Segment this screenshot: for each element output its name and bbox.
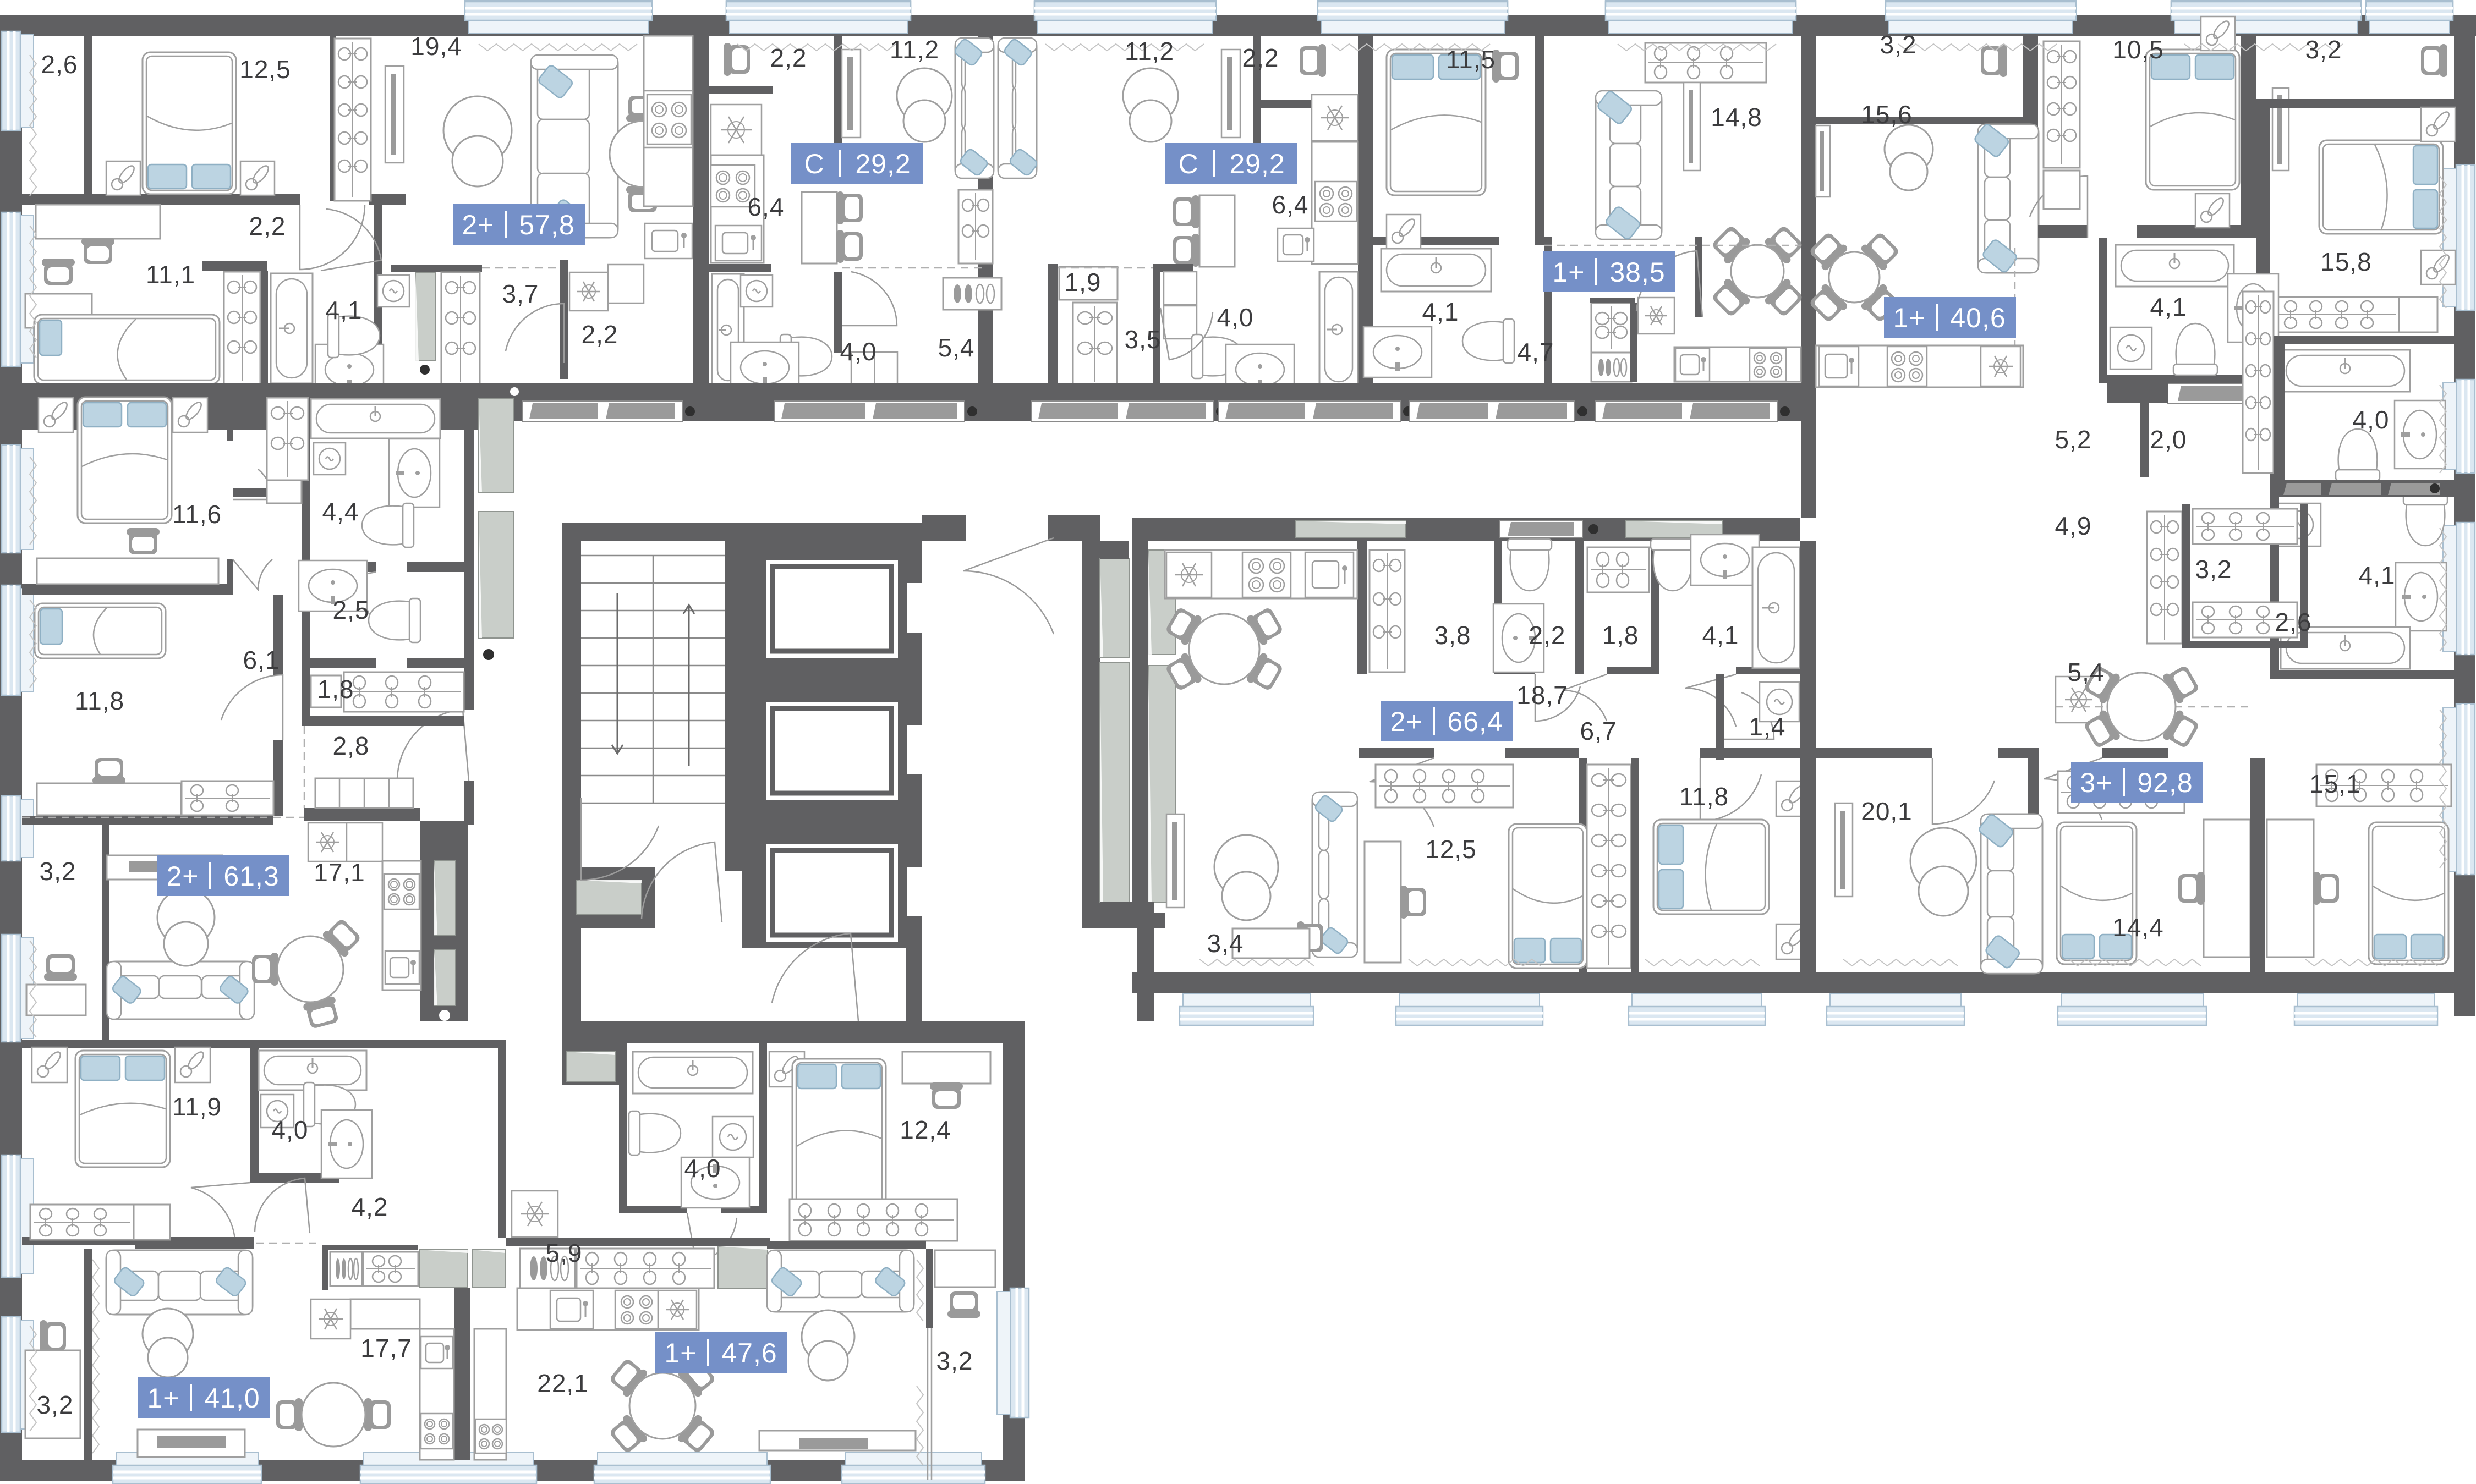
svg-text:C: C	[804, 149, 824, 179]
svg-text:4,7: 4,7	[1518, 338, 1554, 366]
svg-text:15,1: 15,1	[2309, 770, 2361, 798]
svg-text:4,9: 4,9	[2055, 512, 2092, 540]
svg-text:1,8: 1,8	[1602, 621, 1639, 650]
svg-text:2+: 2+	[462, 210, 494, 240]
svg-text:12,4: 12,4	[900, 1115, 951, 1144]
svg-text:4,4: 4,4	[322, 497, 359, 526]
svg-text:10,5: 10,5	[2112, 35, 2164, 64]
svg-text:1+: 1+	[664, 1338, 697, 1368]
svg-text:11,8: 11,8	[75, 686, 124, 715]
svg-text:1,4: 1,4	[1749, 712, 1786, 741]
svg-text:4,1: 4,1	[1702, 621, 1739, 650]
svg-text:3,5: 3,5	[1125, 325, 1162, 354]
svg-text:1+: 1+	[1893, 303, 1925, 333]
svg-text:4,2: 4,2	[352, 1192, 388, 1221]
svg-text:15,6: 15,6	[1861, 100, 1913, 129]
svg-text:3,4: 3,4	[1207, 929, 1244, 958]
svg-text:6,7: 6,7	[1580, 717, 1617, 745]
svg-text:2,0: 2,0	[2150, 425, 2187, 454]
svg-text:66,4: 66,4	[1447, 706, 1503, 737]
svg-text:14,8: 14,8	[1711, 103, 1762, 131]
svg-text:12,5: 12,5	[1425, 835, 1477, 864]
svg-text:92,8: 92,8	[2137, 767, 2193, 798]
svg-text:17,7: 17,7	[360, 1334, 412, 1362]
svg-text:6,4: 6,4	[748, 193, 785, 221]
svg-text:22,1: 22,1	[537, 1369, 589, 1398]
svg-text:4,1: 4,1	[2150, 293, 2187, 321]
svg-text:2,6: 2,6	[2275, 608, 2312, 636]
svg-text:4,1: 4,1	[326, 296, 363, 325]
svg-text:11,8: 11,8	[1679, 782, 1729, 811]
svg-text:17,1: 17,1	[314, 858, 365, 887]
svg-text:3,2: 3,2	[2305, 35, 2342, 64]
svg-text:2,8: 2,8	[333, 732, 370, 760]
svg-text:29,2: 29,2	[1229, 149, 1285, 179]
svg-text:2+: 2+	[1390, 706, 1422, 737]
svg-text:11,1: 11,1	[146, 260, 195, 289]
svg-text:2,2: 2,2	[249, 212, 286, 240]
svg-text:2,5: 2,5	[333, 596, 370, 624]
svg-text:11,2: 11,2	[890, 35, 939, 64]
svg-text:6,4: 6,4	[1272, 190, 1309, 219]
svg-text:11,9: 11,9	[172, 1092, 222, 1121]
svg-text:3,2: 3,2	[40, 857, 76, 886]
svg-text:2,2: 2,2	[1242, 43, 1279, 72]
svg-text:47,6: 47,6	[721, 1338, 777, 1368]
svg-text:3,2: 3,2	[936, 1346, 973, 1375]
svg-text:3,2: 3,2	[2195, 555, 2232, 584]
svg-text:38,5: 38,5	[1609, 257, 1665, 288]
svg-text:15,8: 15,8	[2320, 248, 2372, 276]
svg-text:4,0: 4,0	[1217, 303, 1254, 332]
svg-text:40,6: 40,6	[1950, 303, 2006, 333]
svg-text:4,1: 4,1	[1422, 298, 1459, 326]
svg-text:2,6: 2,6	[41, 50, 78, 79]
svg-text:57,8: 57,8	[519, 210, 574, 240]
svg-text:11,5: 11,5	[1446, 45, 1496, 74]
svg-text:61,3: 61,3	[223, 861, 279, 892]
svg-text:41,0: 41,0	[204, 1383, 260, 1414]
svg-text:4,0: 4,0	[684, 1154, 721, 1183]
svg-text:1,8: 1,8	[317, 675, 354, 703]
svg-text:4,0: 4,0	[840, 337, 877, 366]
svg-text:3,2: 3,2	[37, 1390, 74, 1419]
svg-text:C: C	[1178, 149, 1198, 179]
svg-text:1+: 1+	[1552, 257, 1585, 288]
svg-text:3,7: 3,7	[502, 279, 539, 308]
svg-text:3,2: 3,2	[1880, 30, 1917, 59]
svg-text:3+: 3+	[2080, 767, 2112, 798]
svg-text:2+: 2+	[166, 861, 199, 892]
svg-text:19,4: 19,4	[410, 32, 462, 61]
svg-text:18,7: 18,7	[1516, 681, 1568, 710]
svg-text:6,1: 6,1	[243, 646, 280, 674]
svg-text:14,4: 14,4	[2112, 913, 2164, 942]
svg-text:5,4: 5,4	[2068, 658, 2105, 686]
svg-text:4,0: 4,0	[2353, 405, 2390, 434]
svg-text:4,0: 4,0	[272, 1115, 309, 1144]
svg-text:29,2: 29,2	[855, 149, 911, 179]
svg-text:3,8: 3,8	[1434, 621, 1471, 650]
svg-text:11,6: 11,6	[172, 500, 222, 529]
svg-text:4,1: 4,1	[2359, 561, 2396, 590]
svg-text:5,4: 5,4	[938, 333, 975, 362]
svg-text:5,2: 5,2	[2055, 425, 2092, 454]
svg-text:5,9: 5,9	[546, 1239, 583, 1267]
svg-text:1+: 1+	[147, 1383, 179, 1414]
svg-text:20,1: 20,1	[1861, 797, 1913, 826]
svg-text:2,2: 2,2	[1529, 621, 1566, 650]
svg-text:12,5: 12,5	[239, 55, 291, 84]
svg-text:11,2: 11,2	[1125, 37, 1174, 65]
svg-text:2,2: 2,2	[582, 320, 618, 349]
svg-text:2,2: 2,2	[770, 43, 807, 72]
svg-text:1,9: 1,9	[1065, 268, 1102, 296]
